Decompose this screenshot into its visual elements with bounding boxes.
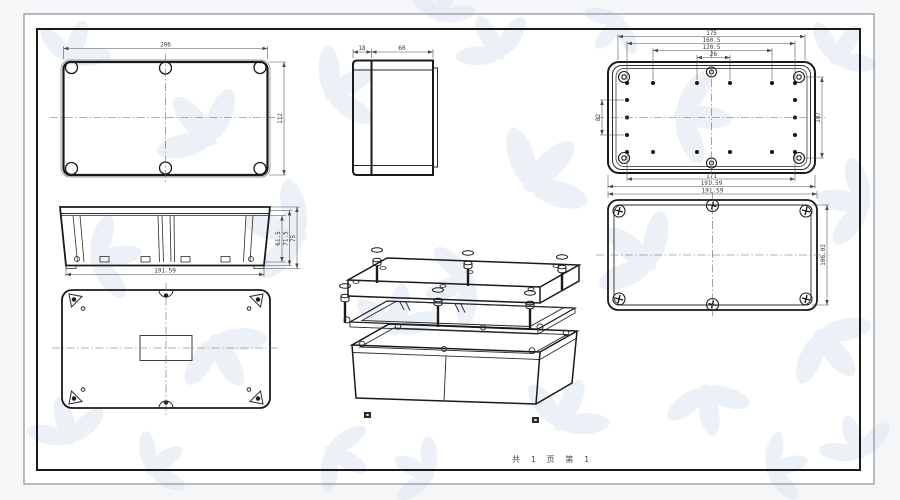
dim-lid-label: 18 [358,45,366,52]
dim-bottom1-label: 171 [706,173,717,180]
dim-right-label: 106.03 [820,244,827,266]
dim-top-label: 191.59 [702,188,724,195]
dim-top3-label: 120.5 [702,44,720,51]
dim-top2-label: 160.5 [702,37,720,44]
dim-body-label: 60 [398,45,406,52]
dim-right-label: 107 [815,112,822,123]
dim-h1-label: 61.5 [275,231,282,246]
drawing-sheet: { "colors": { "line": "#1a1a1a", "dim_te… [0,0,900,500]
dim-top4-label: 26 [710,51,718,58]
dim-h2-label: 71.5 [283,231,290,246]
dim-width-label: 206 [160,42,171,49]
dim-left-label: 82 [595,114,602,122]
dim-bottom2-label: 191.59 [701,180,723,187]
sheet-footer-page-info: 共 1 页 第 1 [512,454,592,464]
dim-top1-label: 175 [706,30,717,37]
dim-h3-label: 75 [290,235,297,243]
sheet-paper [24,14,874,484]
dim-bottom-width-label: 191.59 [154,268,176,275]
drawing-canvas: 206 112 18 60 [0,0,900,500]
dim-height-label: 112 [277,113,284,124]
